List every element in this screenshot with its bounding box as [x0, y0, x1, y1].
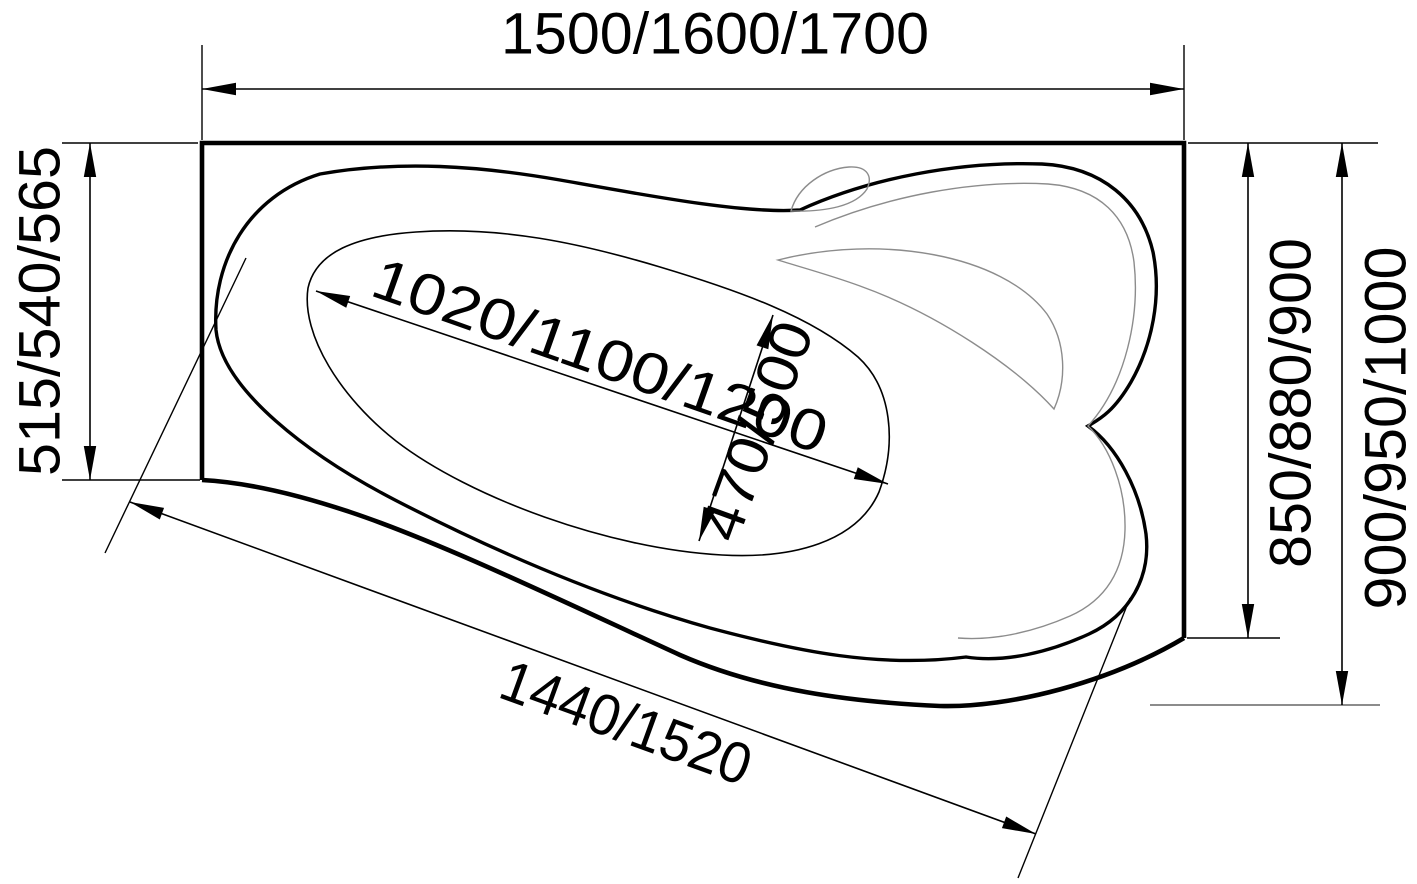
dim-overall-length-label: 1500/1600/1700: [501, 2, 929, 67]
dim-left-end-width-label: 515/540/565: [8, 146, 73, 476]
dim-overall-width-label: 900/950/1000: [1354, 247, 1417, 610]
technical-drawing: 1500/1600/1700 515/540/565 850/880/900 9…: [0, 0, 1417, 884]
dim-right-side-depth-label: 850/880/900: [1259, 238, 1324, 568]
